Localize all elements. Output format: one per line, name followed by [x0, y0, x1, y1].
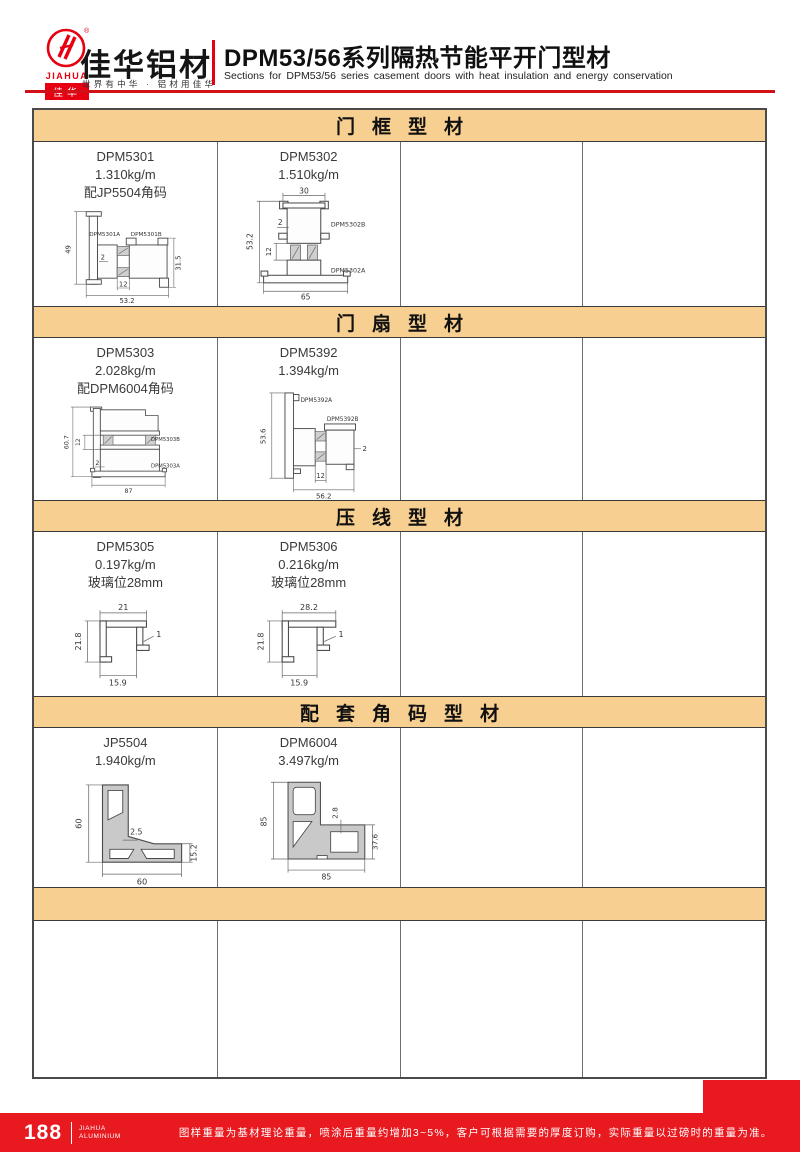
dim-width: 87	[125, 488, 133, 495]
dim-mid: 12	[316, 472, 324, 480]
dim-top: 21	[118, 603, 128, 612]
profile-cell-dpm5306: DPM5306 0.216kg/m 玻璃位28mm 28.2 21.8	[217, 532, 400, 696]
dim-width: 53.2	[119, 297, 134, 304]
row-empty	[34, 921, 765, 1077]
dim-height: 21.8	[75, 633, 84, 651]
section-header-doorframe: 门框型材	[34, 110, 765, 142]
page-title: DPM53/56系列隔热节能平开门型材	[224, 38, 611, 73]
part-b-label: DPM5303B	[151, 437, 180, 443]
registered-mark: ®	[84, 27, 90, 35]
section-header-cornercode: 配套角码型材	[34, 696, 765, 728]
profile-outline	[282, 621, 336, 662]
profile-code: DPM5303	[34, 344, 217, 362]
profile-outline	[86, 212, 168, 288]
empty-cell	[400, 921, 583, 1077]
profile-note: 玻璃位28mm	[34, 574, 217, 592]
empty-cell	[400, 338, 583, 500]
profile-code: DPM6004	[218, 734, 400, 752]
dim-width: 60	[137, 876, 148, 886]
row-doorframe: DPM5301 1.310kg/m 配JP5504角码	[34, 142, 765, 306]
brand-tagline: 世界有中华 · 铝材用佳华	[82, 78, 216, 90]
dpm5303-drawing: 60.7 12 2 87 DPM5303B DPM5303A	[62, 400, 188, 500]
dim-width: 56.2	[316, 492, 332, 500]
footer-brand-line1: JIAHUA	[79, 1125, 121, 1133]
catalog-page: { "header": { "logo": {"en": "JIAHUA", "…	[0, 0, 800, 1167]
profile-cell-dpm5303: DPM5303 2.028kg/m 配DPM6004角码	[34, 338, 217, 500]
profile-outline	[288, 782, 365, 859]
dim-height2: 31.5	[175, 255, 183, 270]
dim-height: 60	[73, 818, 83, 829]
dpm5305-drawing: 21 21.8 1 15.9	[58, 594, 192, 689]
profile-outline	[100, 621, 149, 662]
row-glazingbead: DPM5305 0.197kg/m 玻璃位28mm 21 21.8	[34, 532, 765, 696]
profile-outline	[102, 785, 181, 862]
dpm5302-drawing: 30 2 53.2 12 65 DPM5302B DPM5302A	[235, 186, 383, 304]
profile-code: DPM5302	[218, 148, 400, 166]
profile-cell-dpm5301: DPM5301 1.310kg/m 配JP5504角码	[34, 142, 217, 306]
dim-height: 53.6	[259, 429, 267, 445]
profile-weight: 1.940kg/m	[34, 752, 217, 770]
dim-top: 28.2	[300, 603, 318, 612]
profile-table: 门框型材 DPM5301 1.310kg/m 配JP5504角码	[32, 108, 767, 1079]
profile-cell-dpm5302: DPM5302 1.510kg/m	[217, 142, 400, 306]
page-number: 188	[24, 1121, 62, 1145]
dim-thickness: 2.8	[331, 807, 340, 819]
empty-cell	[400, 728, 583, 887]
dim-thickness: 1	[157, 630, 162, 639]
footer-divider	[71, 1122, 72, 1144]
part-a-label: DPM5302A	[330, 268, 365, 275]
profile-weight: 1.394kg/m	[218, 362, 400, 380]
dpm5392-drawing: 53.6 12 2 56.2 DPM5392A DPM5392B	[240, 382, 378, 500]
dim-wall: 2	[278, 218, 283, 227]
footer-disclaimer: 图样重量为基材理论重量，喷涂后重量约增加3~5%，客户可根据需要的厚度订购，实际…	[179, 1125, 773, 1140]
part-b-label: DPM5302B	[330, 222, 364, 229]
empty-cell	[400, 532, 583, 696]
profile-code: JP5504	[34, 734, 217, 752]
profile-cell-dpm6004: DPM6004 3.497kg/m 85 2.8 37.6	[217, 728, 400, 887]
dim-wall: 2	[100, 253, 104, 261]
footer-brand-line2: ALUMINIUM	[79, 1133, 121, 1141]
profile-weight: 1.510kg/m	[218, 166, 400, 184]
dim-width: 65	[300, 293, 310, 302]
empty-cell	[582, 532, 765, 696]
profile-weight: 0.197kg/m	[34, 556, 217, 574]
profile-weight: 1.310kg/m	[34, 166, 217, 184]
profile-code: DPM5301	[34, 148, 217, 166]
dim-mid: 12	[264, 247, 273, 256]
header-divider	[212, 40, 215, 85]
footer-brand: JIAHUA ALUMINIUM	[79, 1125, 121, 1141]
dim-thickness: 1	[338, 630, 343, 639]
profile-cell-jp5504: JP5504 1.940kg/m 60 2.5 15.2	[34, 728, 217, 887]
empty-cell	[400, 142, 583, 306]
empty-cell	[34, 921, 217, 1077]
profile-note: 配JP5504角码	[34, 184, 217, 202]
dpm6004-drawing: 85 2.8 37.6 85	[235, 772, 382, 887]
profile-weight: 2.028kg/m	[34, 362, 217, 380]
part-b-label: DPM5392B	[326, 417, 358, 423]
empty-cell	[582, 338, 765, 500]
jp5504-drawing: 60 2.5 15.2 60	[51, 772, 200, 887]
dpm5306-drawing: 28.2 21.8 1 15.9	[242, 594, 376, 689]
dim-mid: 12	[119, 280, 128, 288]
empty-cell	[582, 728, 765, 887]
part-b-label: DPM5301B	[131, 232, 162, 238]
dimensions: 60 2.5 15.2 60	[73, 785, 198, 886]
row-doorsash: DPM5303 2.028kg/m 配DPM6004角码	[34, 338, 765, 500]
empty-cell	[582, 921, 765, 1077]
profile-code: DPM5306	[218, 538, 400, 556]
dpm5301-drawing: 49 2 12 53.2 31.5 DPM5301A DPM5301B	[59, 204, 192, 304]
dim-thickness: 2.5	[130, 828, 142, 837]
profile-code: DPM5392	[218, 344, 400, 362]
profile-note: 玻璃位28mm	[218, 574, 400, 592]
dim-height: 60.7	[64, 435, 71, 449]
section-header-empty	[34, 887, 765, 921]
dim-height: 49	[64, 245, 72, 254]
section-header-doorsash: 门扇型材	[34, 306, 765, 338]
dim-width: 15.9	[109, 678, 127, 687]
dim-height: 21.8	[256, 633, 265, 651]
empty-cell	[582, 142, 765, 306]
profile-outline	[285, 393, 356, 478]
profile-weight: 3.497kg/m	[218, 752, 400, 770]
dim-wall: 2	[362, 445, 366, 453]
header-rule	[25, 90, 775, 93]
section-header-glazingbead: 压线型材	[34, 500, 765, 532]
dim-right: 37.6	[371, 833, 380, 850]
dim-right: 15.2	[189, 844, 198, 861]
part-a-label: DPM5301A	[89, 232, 120, 238]
profile-weight: 0.216kg/m	[218, 556, 400, 574]
dim-mid: 12	[75, 438, 82, 446]
empty-cell	[217, 921, 400, 1077]
row-cornercode: JP5504 1.940kg/m 60 2.5 15.2	[34, 728, 765, 887]
profile-code: DPM5305	[34, 538, 217, 556]
dim-height: 53.2	[245, 233, 254, 250]
part-a-label: DPM5303A	[151, 464, 180, 470]
profile-cell-dpm5305: DPM5305 0.197kg/m 玻璃位28mm 21 21.8	[34, 532, 217, 696]
footer-bar: 188 JIAHUA ALUMINIUM 图样重量为基材理论重量，喷涂后重量约增…	[0, 1113, 800, 1152]
dimensions: 28.2 21.8 1 15.9	[256, 603, 343, 687]
dim-wall: 2	[96, 460, 100, 467]
profile-cell-dpm5392: DPM5392 1.394kg/m 53	[217, 338, 400, 500]
dim-height: 85	[260, 816, 269, 826]
dim-top: 30	[299, 187, 309, 196]
dim-width: 85	[322, 872, 332, 881]
page-subtitle: Sections for DPM53/56 series casement do…	[224, 70, 673, 82]
profile-note: 配DPM6004角码	[34, 380, 217, 398]
dim-width: 15.9	[290, 678, 308, 687]
part-a-label: DPM5392A	[300, 398, 332, 404]
